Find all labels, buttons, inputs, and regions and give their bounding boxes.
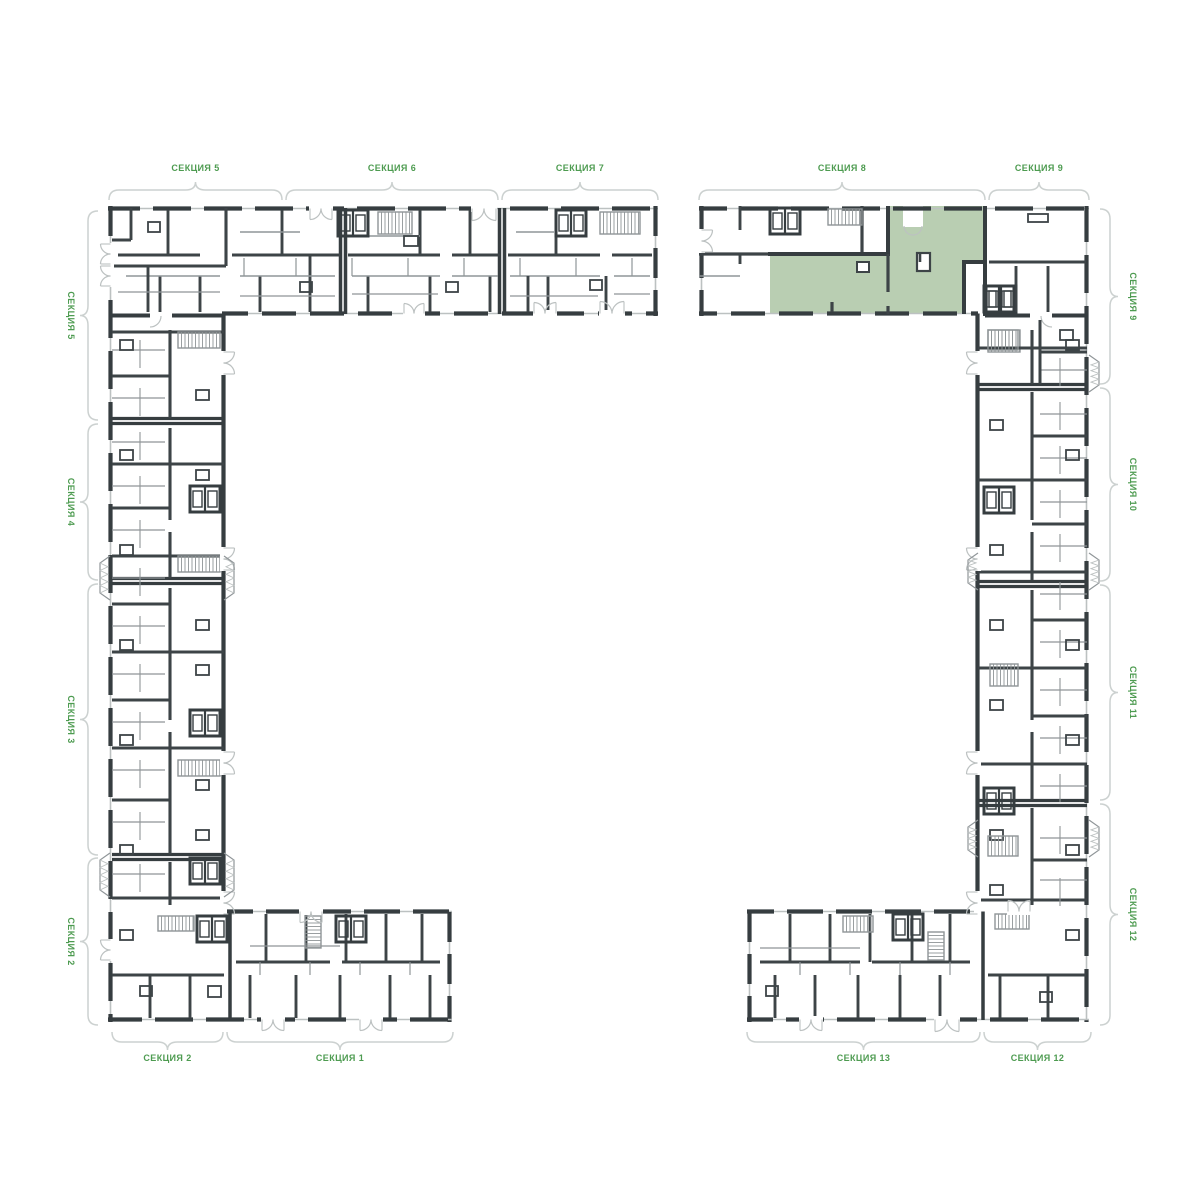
svg-text:СЕКЦИЯ 1: СЕКЦИЯ 1	[316, 1053, 364, 1063]
svg-text:СЕКЦИЯ 7: СЕКЦИЯ 7	[556, 163, 604, 173]
svg-text:СЕКЦИЯ 10: СЕКЦИЯ 10	[1128, 458, 1138, 512]
svg-text:СЕКЦИЯ 13: СЕКЦИЯ 13	[837, 1053, 891, 1063]
svg-text:СЕКЦИЯ 9: СЕКЦИЯ 9	[1015, 163, 1063, 173]
svg-text:СЕКЦИЯ 6: СЕКЦИЯ 6	[368, 163, 416, 173]
svg-text:СЕКЦИЯ 5: СЕКЦИЯ 5	[66, 291, 76, 339]
svg-text:СЕКЦИЯ 9: СЕКЦИЯ 9	[1128, 272, 1138, 320]
svg-text:СЕКЦИЯ 8: СЕКЦИЯ 8	[818, 163, 866, 173]
svg-text:СЕКЦИЯ 4: СЕКЦИЯ 4	[66, 478, 76, 526]
svg-text:СЕКЦИЯ 2: СЕКЦИЯ 2	[143, 1053, 191, 1063]
svg-text:СЕКЦИЯ 2: СЕКЦИЯ 2	[66, 917, 76, 965]
svg-text:СЕКЦИЯ 3: СЕКЦИЯ 3	[66, 695, 76, 743]
svg-text:СЕКЦИЯ 12: СЕКЦИЯ 12	[1128, 888, 1138, 942]
svg-text:СЕКЦИЯ 11: СЕКЦИЯ 11	[1128, 666, 1138, 719]
svg-text:СЕКЦИЯ 12: СЕКЦИЯ 12	[1011, 1053, 1065, 1063]
svg-text:СЕКЦИЯ 5: СЕКЦИЯ 5	[171, 163, 219, 173]
